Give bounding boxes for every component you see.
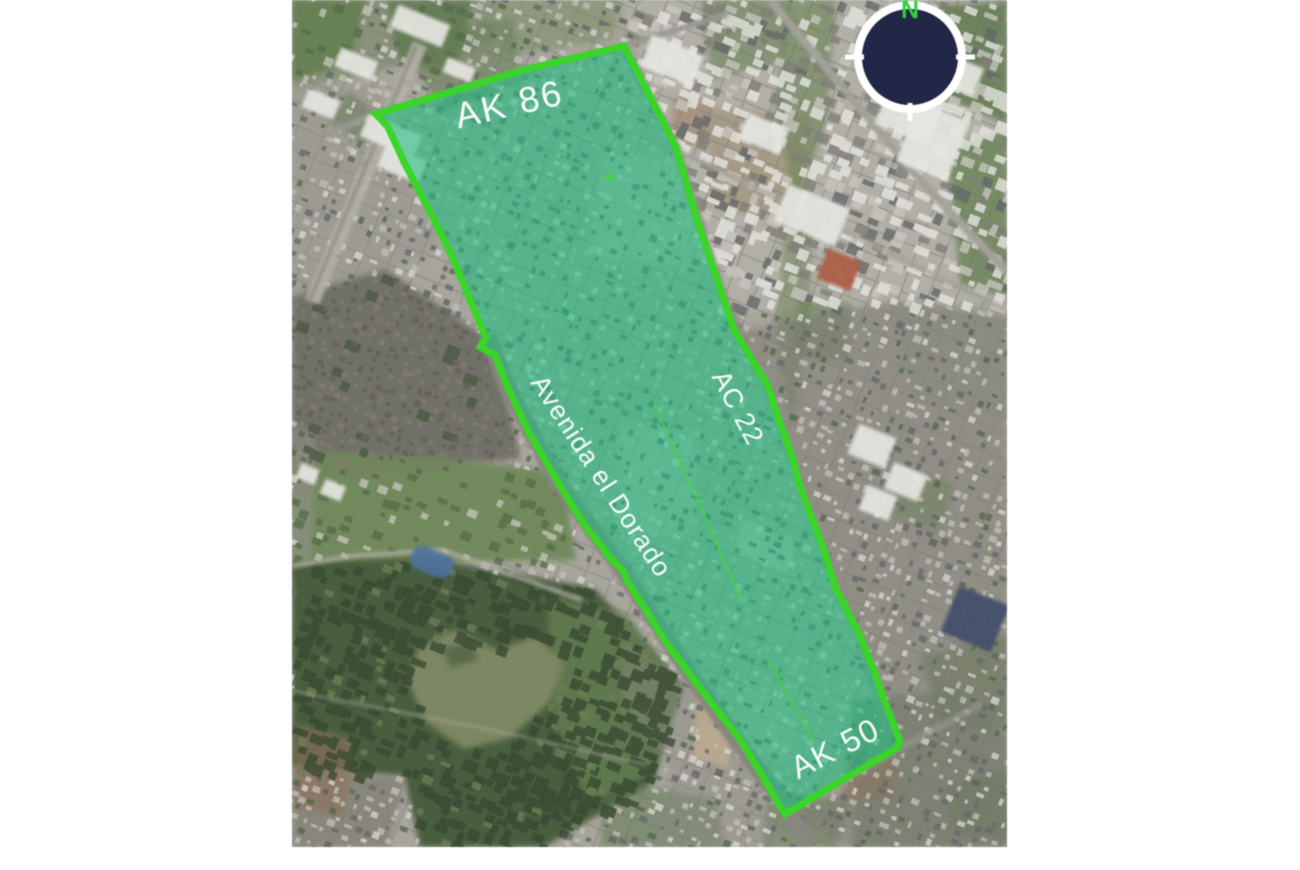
svg-text:N: N bbox=[901, 0, 919, 24]
